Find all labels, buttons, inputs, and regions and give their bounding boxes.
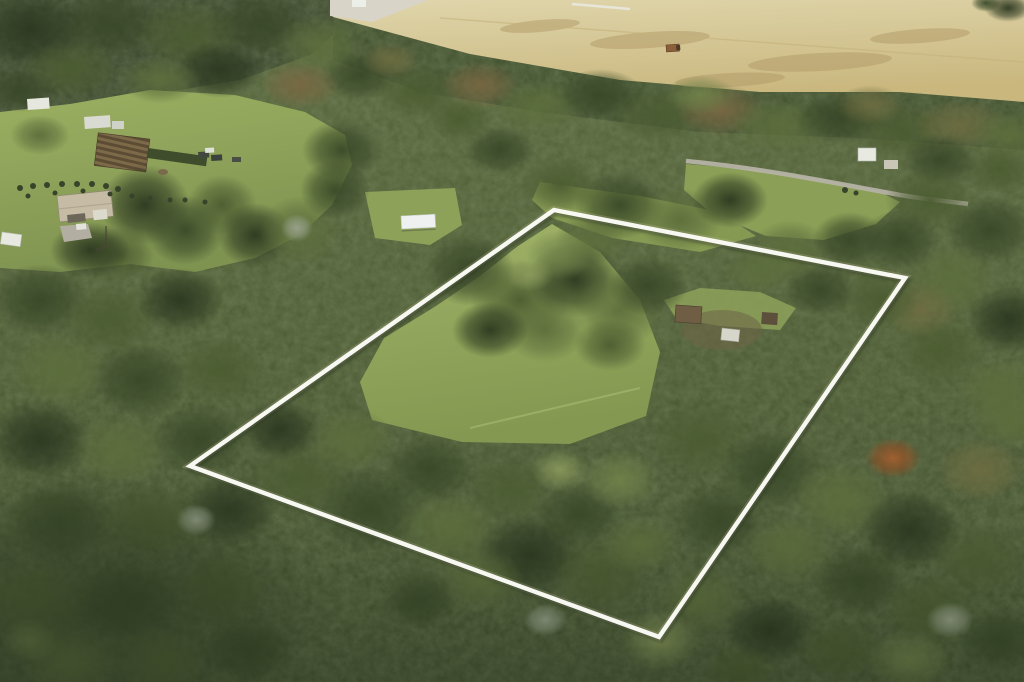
aerial-photo-svg: [0, 0, 1024, 682]
aerial-photo: [0, 0, 1024, 682]
autumn-tree: [865, 438, 921, 478]
white-trailer: [27, 97, 50, 110]
cow-dot: [842, 187, 848, 193]
field-building: [352, 0, 366, 7]
field-tractor: [666, 44, 680, 52]
white-car: [76, 223, 86, 230]
rv-trailer: [0, 232, 21, 247]
shed-small: [112, 121, 124, 129]
main-house: [57, 190, 114, 223]
shed: [84, 115, 111, 129]
